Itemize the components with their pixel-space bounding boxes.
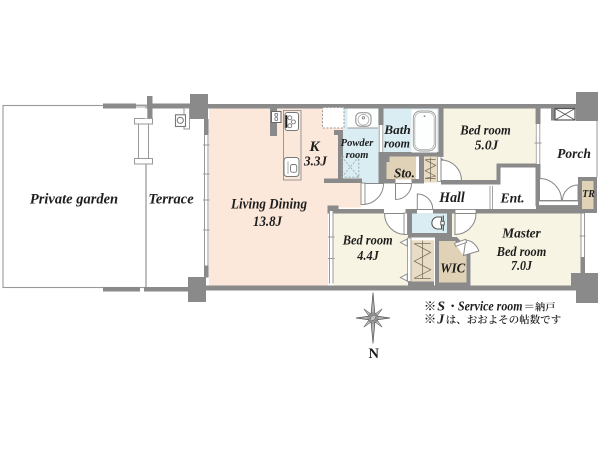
svg-text:Ent.: Ent. [500, 192, 525, 207]
svg-text:4.4J: 4.4J [356, 249, 379, 264]
svg-text:Living Dining: Living Dining [230, 197, 307, 213]
svg-text:Service room: Service room [458, 299, 523, 314]
svg-text:7.0J: 7.0J [511, 258, 533, 273]
svg-text:Terrace: Terrace [148, 192, 194, 208]
svg-text:Master: Master [501, 226, 541, 241]
svg-text:Hall: Hall [438, 190, 465, 206]
svg-text:room: room [384, 136, 410, 151]
svg-text:Powder: Powder [341, 138, 375, 149]
svg-text:Porch: Porch [557, 146, 591, 161]
svg-text:J: J [436, 312, 445, 327]
svg-text:Sto.: Sto. [394, 167, 415, 182]
svg-text:13.8J: 13.8J [253, 214, 283, 230]
svg-text:TR: TR [582, 189, 595, 200]
svg-text:room: room [346, 150, 369, 161]
svg-text:5.0J: 5.0J [475, 139, 499, 154]
svg-text:N: N [368, 346, 379, 362]
svg-text:3.3J: 3.3J [303, 154, 328, 169]
svg-text:Bed room: Bed room [342, 234, 393, 249]
svg-text:WIC: WIC [440, 262, 466, 277]
svg-text:Bed room: Bed room [459, 124, 510, 139]
svg-text:Private garden: Private garden [30, 192, 118, 208]
